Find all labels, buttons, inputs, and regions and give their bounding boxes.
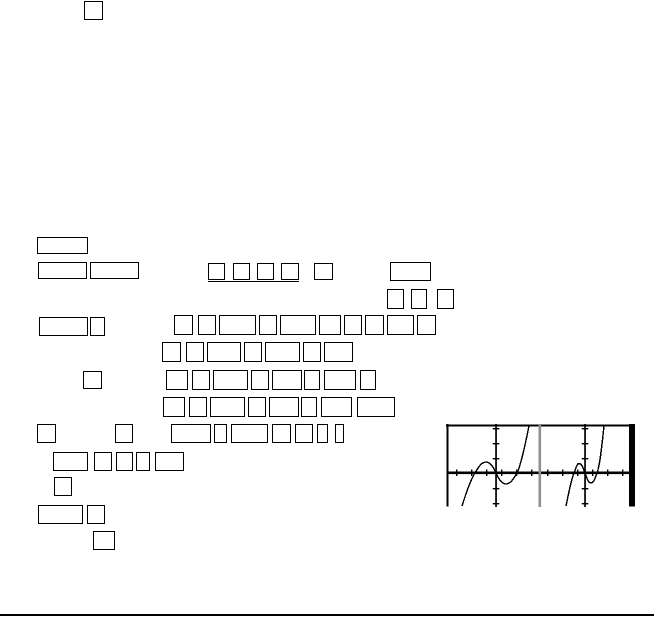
missing-glyph-box [174, 315, 193, 335]
missing-glyph-box [54, 477, 72, 496]
missing-glyph-box [94, 452, 112, 471]
graph-y-tick [582, 428, 589, 429]
graph-x-tick [622, 470, 623, 477]
missing-glyph-box [324, 370, 356, 390]
missing-glyph-box [269, 397, 299, 417]
graph-x-tick [501, 470, 502, 477]
missing-glyph-box [360, 370, 376, 390]
graph-y-tick [493, 488, 500, 489]
missing-glyph-box [198, 315, 216, 335]
missing-glyph-box [208, 263, 225, 280]
missing-glyph-box [257, 263, 274, 280]
missing-glyph-box [116, 452, 133, 471]
missing-glyph-box [335, 424, 344, 443]
graph-separator-line [539, 424, 542, 507]
missing-glyph-box [301, 397, 317, 417]
missing-glyph-box [303, 342, 321, 362]
missing-glyph-box [219, 315, 256, 335]
missing-glyph-box [437, 289, 454, 309]
missing-glyph-box [357, 397, 395, 417]
missing-glyph-box [115, 424, 133, 443]
missing-glyph-box [210, 397, 245, 417]
missing-glyph-box [233, 263, 250, 280]
graph-x-tick [531, 470, 532, 477]
graph-y-tick [582, 458, 589, 459]
footer-rule [0, 614, 654, 616]
missing-glyph-box [387, 289, 404, 309]
missing-glyph-box [411, 289, 427, 309]
missing-glyph-box [38, 262, 87, 279]
document-page [0, 0, 654, 619]
graph-x-tick [486, 470, 487, 477]
missing-glyph-box [213, 370, 248, 390]
missing-glyph-box [280, 315, 316, 335]
missing-glyph-box [387, 315, 414, 335]
graph-y-tick [582, 503, 589, 504]
missing-glyph-box [207, 342, 241, 362]
missing-glyph-box [166, 370, 188, 390]
missing-glyph-box [192, 370, 210, 390]
graph-y-tick [493, 458, 500, 459]
missing-glyph-box [248, 397, 266, 417]
missing-glyph-box [319, 315, 341, 335]
missing-glyph-box [186, 342, 204, 362]
missing-glyph-box [155, 452, 184, 471]
graph-y-tick [493, 428, 500, 429]
graph-x-tick [592, 470, 593, 477]
graph-y-axis [584, 424, 586, 507]
missing-glyph-box [84, 1, 103, 20]
graph-y-tick [493, 503, 500, 504]
graph-frame-right-bar [629, 424, 635, 507]
graph-y-axis [495, 424, 497, 507]
missing-glyph-box [214, 424, 227, 443]
missing-glyph-box [171, 424, 211, 443]
missing-glyph-box [93, 531, 115, 550]
missing-glyph-box [317, 424, 328, 443]
missing-glyph-box [314, 263, 333, 280]
graph-y-tick [493, 443, 500, 444]
graph-y-tick [582, 488, 589, 489]
missing-glyph-box [251, 370, 269, 390]
missing-glyph-box [38, 505, 83, 524]
graph-frame-left [447, 424, 449, 507]
graph-y-tick [582, 443, 589, 444]
missing-glyph-box [53, 452, 88, 471]
missing-glyph-box [417, 315, 436, 335]
missing-glyph-box [163, 397, 185, 417]
graph-x-tick [562, 470, 563, 477]
missing-glyph-box [324, 342, 353, 362]
blank-underline [208, 281, 299, 282]
missing-glyph-box [259, 315, 277, 335]
missing-glyph-box [90, 262, 139, 279]
missing-glyph-box [189, 397, 207, 417]
missing-glyph-box [136, 452, 150, 471]
missing-glyph-box [304, 370, 320, 390]
graph-x-tick [607, 470, 608, 477]
missing-glyph-box [39, 317, 88, 336]
missing-glyph-box [272, 424, 291, 443]
missing-glyph-box [344, 315, 362, 335]
missing-glyph-box [83, 371, 102, 389]
graph-x-tick [577, 470, 578, 477]
missing-glyph-box [281, 263, 299, 280]
missing-glyph-box [272, 370, 302, 390]
missing-glyph-box [87, 505, 105, 524]
missing-glyph-box [244, 342, 262, 362]
missing-glyph-box [390, 262, 431, 281]
missing-glyph-box [90, 317, 105, 336]
function-graph-image [446, 424, 636, 507]
missing-glyph-box [37, 424, 56, 443]
missing-glyph-box [37, 237, 88, 254]
missing-glyph-box [321, 397, 352, 417]
missing-glyph-box [231, 424, 268, 443]
missing-glyph-box [162, 342, 181, 362]
graph-x-tick [547, 470, 548, 477]
graph-x-tick [471, 470, 472, 477]
missing-glyph-box [265, 342, 300, 362]
graph-x-tick [456, 470, 457, 477]
missing-glyph-box [295, 424, 313, 443]
missing-glyph-box [365, 315, 384, 335]
